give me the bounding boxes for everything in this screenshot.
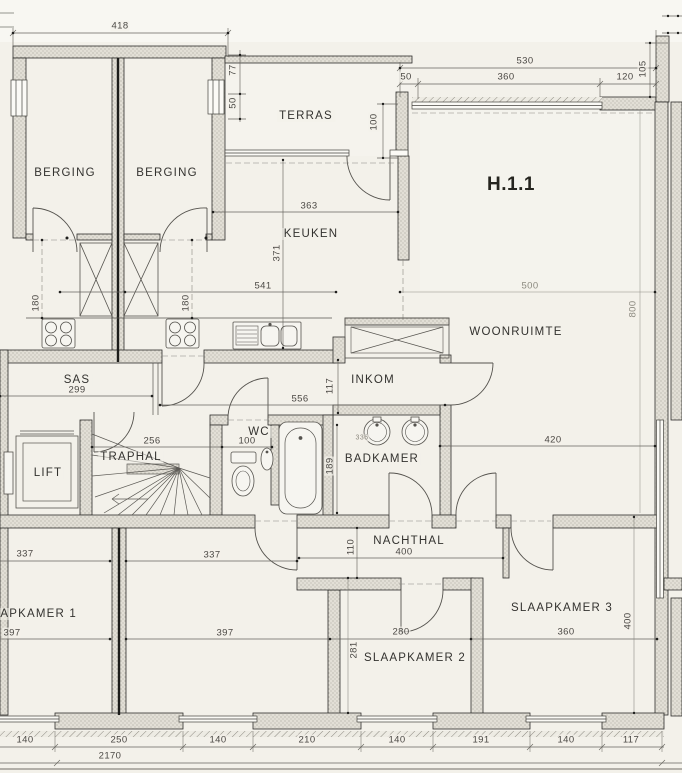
lift-icon: [4, 431, 78, 508]
stove-icon: [166, 319, 199, 348]
washbasin-icon: [364, 417, 390, 445]
washbasin-icon: [402, 417, 428, 445]
fixtures: [4, 243, 449, 514]
stairs-icon: [92, 434, 210, 515]
wc-basin-icon: [261, 448, 273, 470]
floorplan-linework: [0, 0, 682, 773]
scan-artifacts: [0, 0, 682, 769]
shaft-icon: [124, 243, 158, 316]
party-wall-core: [118, 58, 119, 715]
shaft-icon: [80, 243, 112, 316]
unit-title: H.1.1: [487, 174, 535, 196]
floorplan: BERGINGBERGINGTERRASKEUKENWOONRUIMTESASI…: [0, 0, 682, 773]
toilet-icon: [231, 452, 256, 496]
stove-icon: [42, 319, 75, 348]
kitchen-sink-icon: [233, 322, 301, 349]
bathtub-icon: [279, 422, 322, 514]
sas-cupboard-lines: [153, 363, 158, 415]
